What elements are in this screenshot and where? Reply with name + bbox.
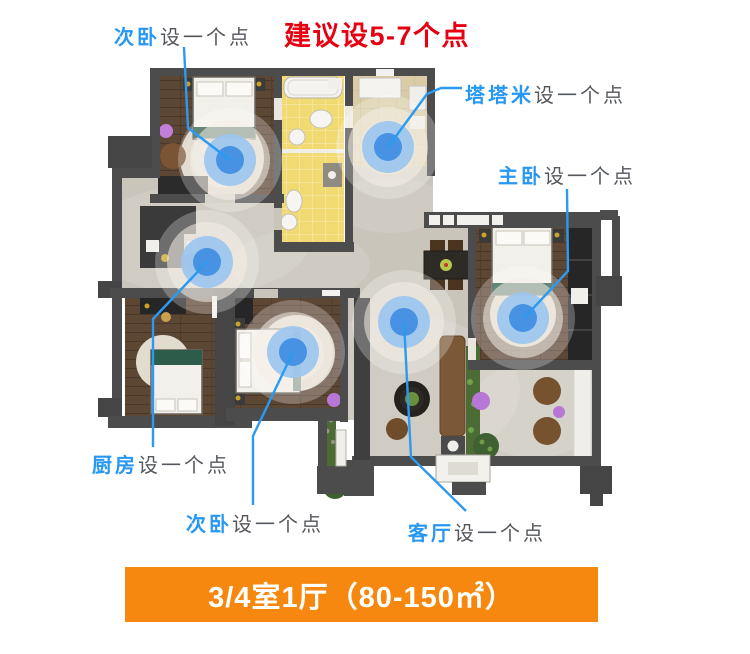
infographic-floorplan: 次卧设一个点 塔塔米设一个点 主卧设一个点 厨房设一个点 次卧设一个点 客厅设一… [0, 0, 750, 654]
room-name: 主卧 [498, 166, 544, 188]
label-bedroom-bottom: 次卧设一个点 [186, 508, 324, 537]
room-note: 设一个点 [160, 27, 252, 49]
toilet [310, 110, 332, 128]
room-name: 次卧 [114, 27, 160, 49]
label-master: 主卧设一个点 [498, 160, 636, 189]
label-tatami: 塔塔米设一个点 [465, 79, 626, 108]
toilet [286, 190, 302, 212]
room-note: 设一个点 [454, 523, 546, 545]
room-note: 设一个点 [138, 455, 230, 477]
floor-plan-svg [0, 0, 750, 654]
room-name: 厨房 [92, 455, 138, 477]
room-name: 塔塔米 [465, 85, 534, 107]
room-note: 设一个点 [534, 85, 626, 107]
label-bedroom-top: 次卧设一个点 [114, 21, 252, 50]
flower-pot [159, 124, 173, 138]
room-note: 设一个点 [232, 514, 324, 536]
room-note: 设一个点 [544, 166, 636, 188]
label-living: 客厅设一个点 [408, 517, 546, 546]
room-name: 客厅 [408, 523, 454, 545]
recommendation-title: 建议设5-7个点 [284, 14, 470, 53]
label-kitchen: 厨房设一个点 [92, 449, 230, 478]
room-name: 次卧 [186, 514, 232, 536]
apartment-size-banner: 3/4室1厅（80-150㎡） [125, 567, 598, 622]
